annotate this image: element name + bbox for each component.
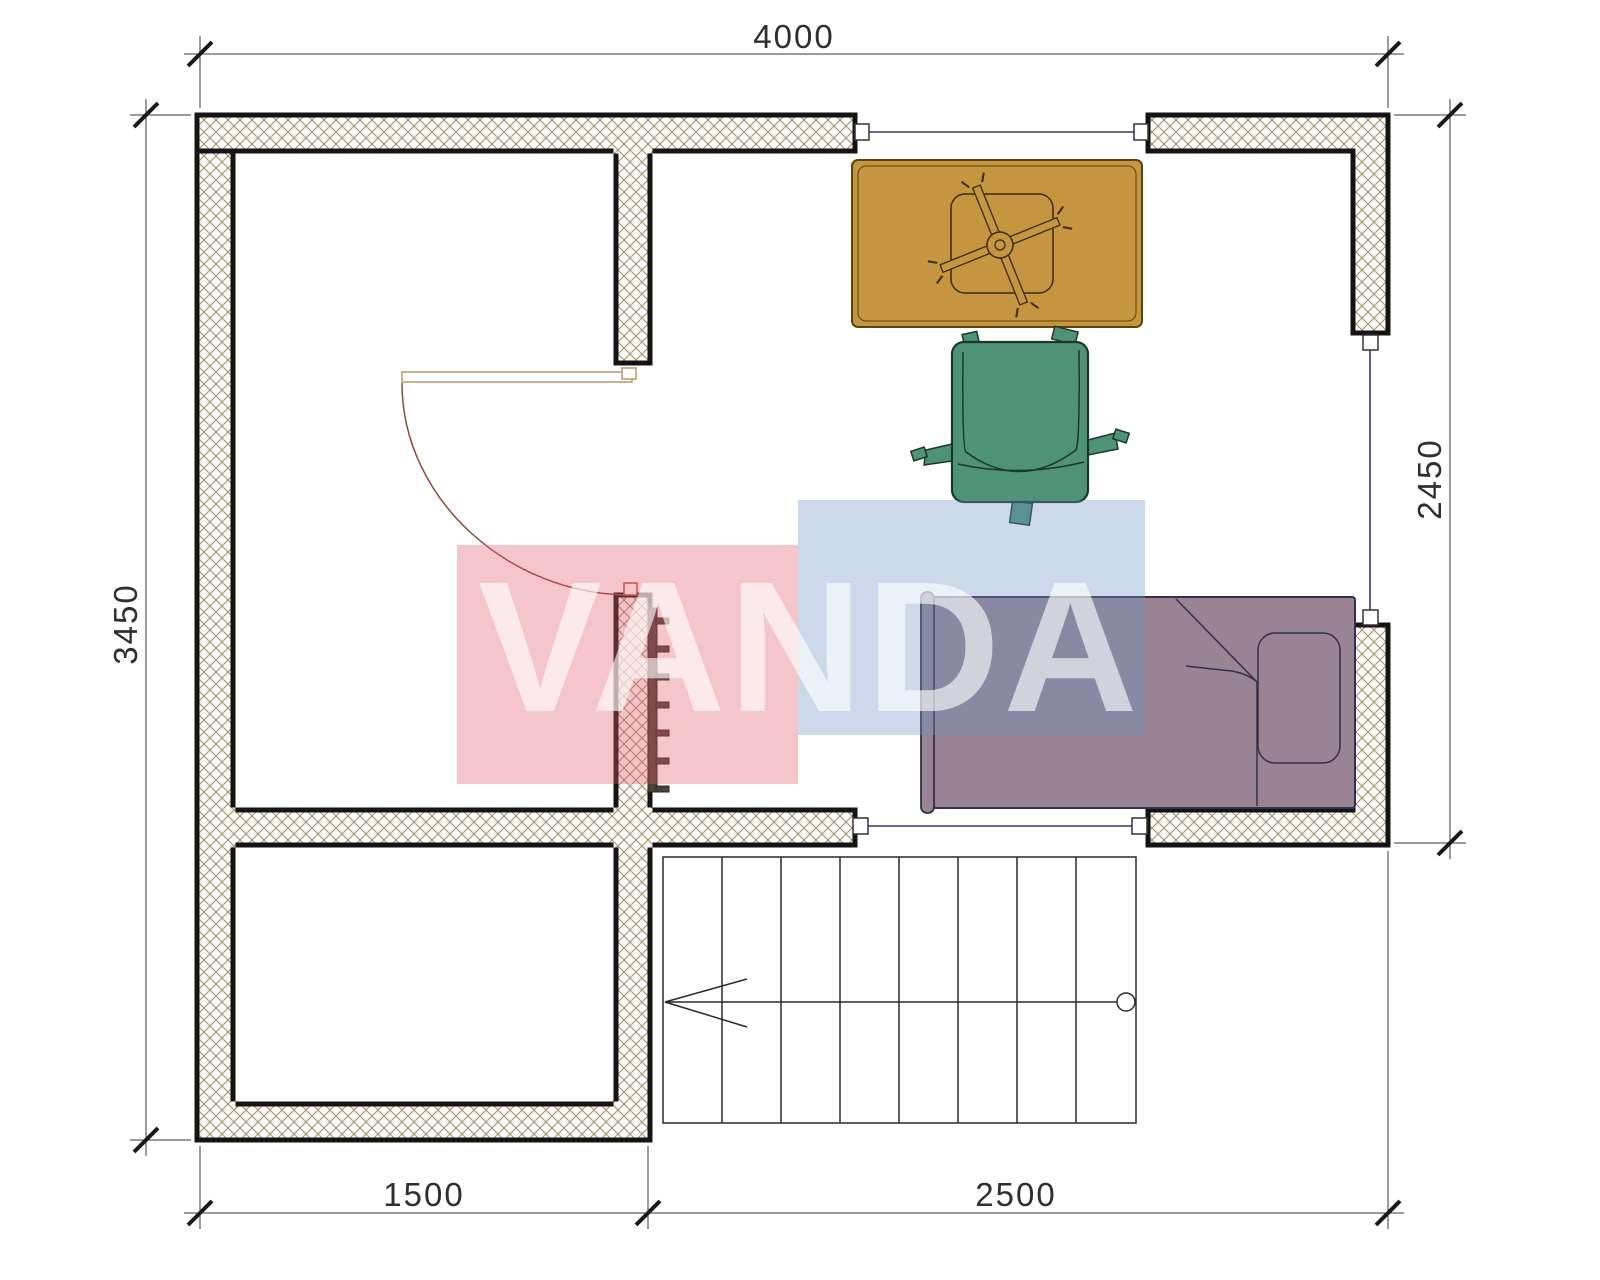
wall-interior-lower	[616, 595, 650, 1140]
wall-left-outer	[197, 115, 233, 1140]
window-bottom	[853, 818, 1147, 834]
window-top	[855, 124, 1148, 140]
door-leaf	[402, 372, 632, 382]
bed	[921, 592, 1355, 813]
bed-pillow	[1258, 633, 1340, 763]
window-right	[1363, 335, 1378, 625]
stair-start-marker	[1117, 993, 1135, 1011]
wall-middle-horizontal	[197, 810, 855, 845]
armchair	[911, 326, 1129, 525]
dim-label-left: 3450	[107, 583, 144, 664]
dim-label-bottom-right: 2500	[975, 1176, 1056, 1213]
dim-label-right: 2450	[1411, 438, 1448, 519]
radiator	[648, 608, 669, 792]
bed-footboard	[921, 592, 934, 813]
armchair-body	[952, 342, 1088, 502]
staircase	[663, 857, 1136, 1123]
floor-plan-drawing: 4000 3450 2450 1500 2500	[0, 0, 1600, 1280]
door-jamb	[624, 583, 637, 595]
door	[402, 368, 637, 595]
wall-junction-patches	[200, 118, 653, 1138]
wall-bottom	[197, 1104, 650, 1140]
wall-top-right-L	[1148, 115, 1388, 333]
floor-plan-canvas: 4000 3450 2450 1500 2500 VANDA	[0, 0, 1600, 1280]
dim-label-bottom-left: 1500	[383, 1176, 464, 1213]
door-hinge-block	[622, 368, 636, 379]
dim-label-top: 4000	[753, 18, 834, 55]
armchair-armrest-left	[924, 444, 952, 465]
wall-top-left	[197, 115, 855, 151]
door-swing-arc	[402, 383, 630, 595]
